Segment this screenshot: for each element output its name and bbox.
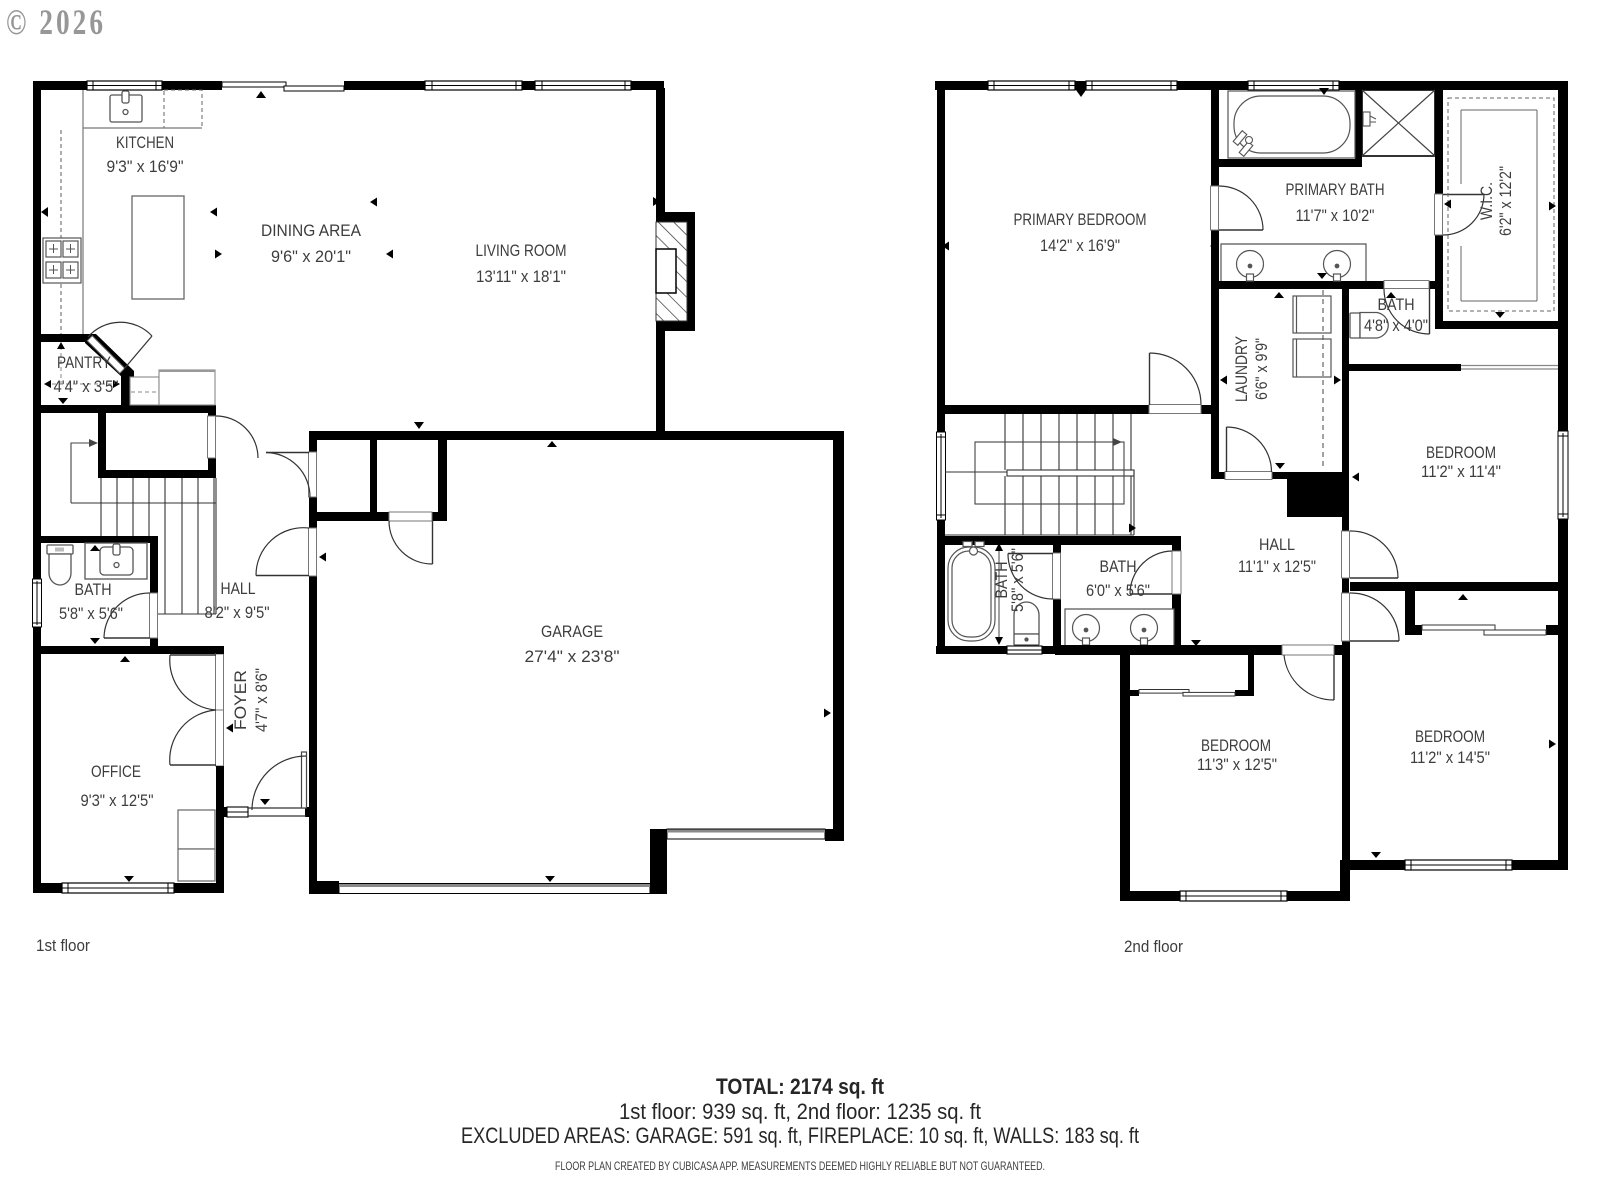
svg-text:11'3" x 12'5": 11'3" x 12'5": [1197, 756, 1277, 774]
svg-text:BATH: BATH: [1378, 296, 1415, 314]
svg-text:1st floor: 939 sq. ft, 2nd flo: 1st floor: 939 sq. ft, 2nd floor: 1235 s…: [619, 1099, 981, 1124]
svg-text:LAUNDRY: LAUNDRY: [1233, 336, 1251, 402]
svg-text:4'8" x 4'0": 4'8" x 4'0": [1364, 317, 1428, 335]
svg-text:11'7" x 10'2": 11'7" x 10'2": [1296, 207, 1375, 225]
svg-text:9'3" x 12'5": 9'3" x 12'5": [81, 792, 154, 810]
svg-text:13'11" x 18'1": 13'11" x 18'1": [476, 268, 566, 286]
svg-text:4'7" x 8'6": 4'7" x 8'6": [253, 668, 271, 732]
svg-text:6'0" x 5'6": 6'0" x 5'6": [1086, 582, 1150, 600]
svg-text:HALL: HALL: [221, 580, 256, 598]
svg-text:TOTAL: 2174 sq. ft: TOTAL: 2174 sq. ft: [716, 1074, 885, 1099]
svg-text:4'4" x 3'5": 4'4" x 3'5": [54, 378, 119, 396]
svg-text:W.I.C.: W.I.C.: [1478, 182, 1496, 220]
svg-text:EXCLUDED AREAS: GARAGE: 591 sq: EXCLUDED AREAS: GARAGE: 591 sq. ft, FIRE…: [461, 1123, 1139, 1148]
svg-text:© 2026: © 2026: [6, 2, 106, 42]
svg-text:BATH: BATH: [1100, 558, 1137, 576]
svg-text:OFFICE: OFFICE: [91, 763, 141, 781]
svg-text:PRIMARY BEDROOM: PRIMARY BEDROOM: [1014, 211, 1147, 229]
svg-text:BATH: BATH: [75, 581, 112, 599]
svg-text:BEDROOM: BEDROOM: [1201, 737, 1271, 755]
svg-text:6'6" x 9'9": 6'6" x 9'9": [1253, 338, 1271, 400]
svg-text:27'4" x 23'8": 27'4" x 23'8": [525, 648, 620, 666]
svg-text:6'2" x 12'2": 6'2" x 12'2": [1497, 166, 1515, 236]
svg-text:BEDROOM: BEDROOM: [1426, 444, 1496, 462]
svg-text:2nd floor: 2nd floor: [1124, 938, 1183, 956]
svg-text:KITCHEN: KITCHEN: [116, 134, 174, 152]
svg-text:1st floor: 1st floor: [36, 937, 90, 955]
svg-text:9'3" x 16'9": 9'3" x 16'9": [107, 158, 184, 176]
svg-text:FLOOR PLAN CREATED BY CUBICASA: FLOOR PLAN CREATED BY CUBICASA APP. MEAS…: [555, 1159, 1045, 1173]
svg-text:PRIMARY BATH: PRIMARY BATH: [1286, 181, 1385, 199]
svg-text:FOYER: FOYER: [232, 670, 250, 730]
svg-text:5'8" x 5'6": 5'8" x 5'6": [59, 605, 123, 623]
svg-text:11'2" x 14'5": 11'2" x 14'5": [1410, 749, 1490, 767]
svg-text:LIVING ROOM: LIVING ROOM: [476, 242, 567, 260]
svg-text:BEDROOM: BEDROOM: [1415, 728, 1485, 746]
svg-text:8'2" x 9'5": 8'2" x 9'5": [205, 604, 270, 622]
svg-text:DINING AREA: DINING AREA: [261, 222, 361, 240]
svg-text:5'8" x 5'6": 5'8" x 5'6": [1009, 548, 1027, 612]
svg-text:14'2" x 16'9": 14'2" x 16'9": [1040, 237, 1120, 255]
svg-text:HALL: HALL: [1259, 536, 1295, 554]
svg-text:GARAGE: GARAGE: [541, 623, 603, 641]
svg-text:11'1" x 12'5": 11'1" x 12'5": [1238, 558, 1316, 576]
svg-text:11'2" x 11'4": 11'2" x 11'4": [1421, 463, 1501, 481]
svg-text:9'6" x 20'1": 9'6" x 20'1": [271, 248, 351, 266]
svg-text:PANTRY: PANTRY: [57, 354, 111, 372]
